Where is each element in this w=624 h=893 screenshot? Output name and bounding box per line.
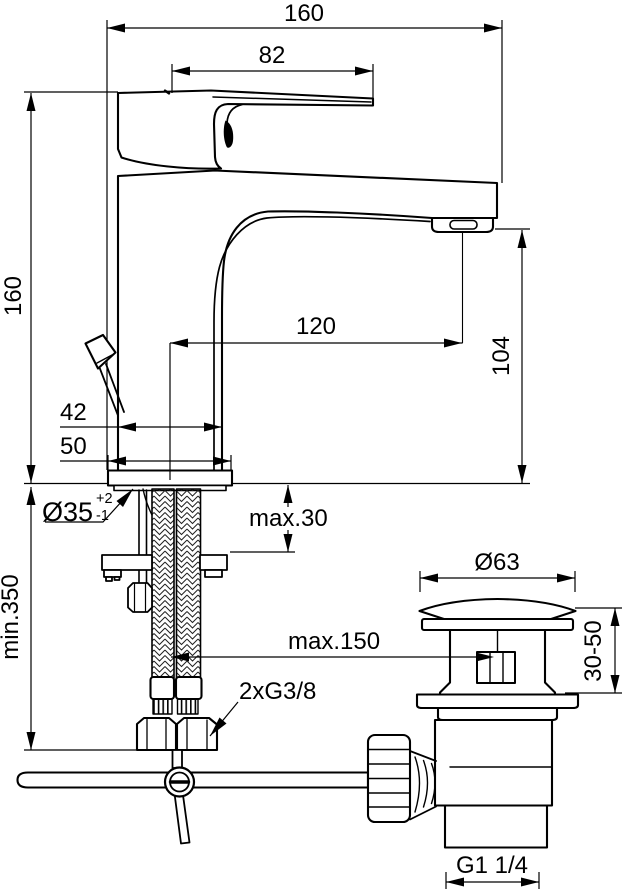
dim-waste-flange-dia: Ø63 xyxy=(420,549,575,592)
dim-label-hole-tol-minus: -1 xyxy=(96,508,109,524)
popup-linkage xyxy=(18,750,369,844)
dim-label-supply-thread: 2xG3/8 xyxy=(239,678,316,705)
dim-label-hole-dia: Ø35 xyxy=(42,497,93,527)
handle-lever xyxy=(118,91,373,169)
dim-label-waste-thread: G1 1/4 xyxy=(456,852,528,879)
waste-plug-cap xyxy=(420,599,576,620)
lift-rod-nut xyxy=(128,583,152,612)
dim-label-outlet-height: 104 xyxy=(488,336,515,376)
faucet-dimension-drawing: 160 82 160 120 104 42 xyxy=(0,0,624,893)
dim-label-hole-tol-plus: +2 xyxy=(96,491,113,507)
dim-outlet-height: 104 xyxy=(232,229,530,484)
braided-hose-right xyxy=(177,489,201,678)
aerator xyxy=(432,218,493,232)
dim-total-width: 160 xyxy=(107,0,502,33)
hose-end-fittings xyxy=(137,677,217,750)
dim-label-clearance-below: min.350 xyxy=(0,574,24,659)
waste-thread-section xyxy=(445,806,547,848)
dim-body-height: 160 xyxy=(0,92,118,483)
dim-mounting-hole: Ø35 +2 -1 xyxy=(42,489,133,527)
handle-pivot-shadow xyxy=(224,121,233,148)
dim-waste-thread: G1 1/4 xyxy=(446,852,539,889)
dim-label-handle-length: 82 xyxy=(259,42,286,69)
dim-label-deck-thickness: max.30 xyxy=(249,505,328,532)
dim-label-upper-body-width: 42 xyxy=(60,399,87,426)
dim-label-waste-deck-range: 30-50 xyxy=(580,620,607,681)
dim-label-base-width: 50 xyxy=(60,433,87,460)
dim-supply-thread: 2xG3/8 xyxy=(210,678,316,736)
braided-hose-left xyxy=(152,489,174,678)
diagonal-rod xyxy=(175,792,190,844)
waste-assembly xyxy=(368,599,578,848)
dim-label-total-width: 160 xyxy=(284,0,324,27)
dim-label-hose-offset: max.150 xyxy=(288,628,380,655)
dim-label-waste-flange-dia: Ø63 xyxy=(474,549,519,576)
dim-label-spout-reach: 120 xyxy=(296,313,336,340)
dim-hose-offset: max.150 xyxy=(171,628,494,662)
waste-tailpiece xyxy=(435,720,552,806)
dim-label-body-height: 160 xyxy=(0,276,27,316)
dim-deck-thickness: max.30 xyxy=(230,485,328,552)
rod-coupling-taper xyxy=(415,757,435,812)
faucet-body-group xyxy=(18,91,579,848)
technical-drawing-page: 160 82 160 120 104 42 xyxy=(0,0,624,893)
